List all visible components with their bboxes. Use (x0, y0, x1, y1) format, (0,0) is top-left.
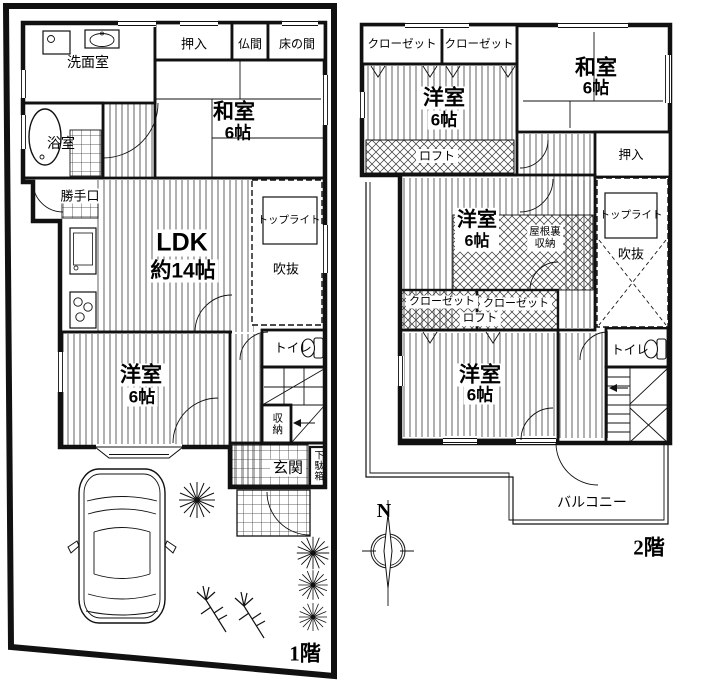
room-label-senmen: 洗面室 (67, 55, 109, 69)
label-attic-storage-line2: 収納 (529, 238, 561, 250)
room-label-closet-nw2: クローゼット (445, 39, 514, 51)
floor2-title: 2階 (633, 538, 665, 559)
compass-north-label: N (377, 501, 391, 521)
room-label-yoshitsu-1f: 洋室 (117, 364, 165, 387)
kitchen-sink-icon (70, 228, 96, 274)
label-toplight-2f: トップライト (600, 210, 663, 221)
skylight-1f (252, 180, 322, 325)
label-attic-storage: 屋根裏 収納 (527, 225, 563, 252)
room-label-yokushitsu: 浴室 (47, 136, 75, 150)
room-label-genkan: 玄関 (270, 460, 306, 477)
label-loft-n: ロフト (416, 149, 458, 163)
label-attic-storage-line1: 屋根裏 (529, 226, 561, 238)
label-fukinuke-2f: 吹抜 (618, 248, 644, 261)
floor2-plan (358, 21, 671, 606)
room-label-yoshitsu-s: 洋室 (456, 364, 504, 387)
room-size-yoshitsu-n: 6帖 (428, 111, 460, 130)
room-label-closet-s1: クローゼット (406, 296, 478, 309)
porch-tile (237, 490, 310, 536)
shrub-icon (179, 482, 215, 518)
room-size-yoshitsu-1f: 6帖 (126, 388, 158, 407)
room-label-tokonoma: 床の間 (279, 38, 315, 50)
car-icon (68, 469, 176, 623)
room-label-yoshitsu-mid: 洋室 6帖 (455, 208, 499, 252)
room-label-yoshitsu-n: 洋室 (420, 87, 468, 110)
room-label-washitsu-2f: 和室 (575, 58, 617, 79)
room-label-toilet-2f: トイレ (611, 344, 649, 357)
stove-icon (70, 292, 96, 328)
room-size-washitsu-2f: 6帖 (583, 80, 609, 97)
room-label-closet-nw1: クローゼット (368, 39, 437, 51)
washbasin-icon (43, 31, 70, 54)
label-getabako: 下駄箱 (313, 450, 323, 482)
room-label-toilet-1f: トイレ (274, 342, 312, 355)
label-toplight-1f: トップライト (258, 215, 321, 226)
room-label-katteguchi: 勝手口 (57, 189, 102, 204)
shrub-icon (299, 603, 327, 631)
label-shuno-1f: 収納 (272, 413, 283, 436)
floor1-title: 1階 (289, 644, 321, 665)
label-fukinuke-1f: 吹抜 (273, 263, 299, 276)
label-balcony: バルコニー (557, 495, 627, 509)
shrub-icon (297, 537, 329, 569)
room-label-butsuma: 仏間 (238, 38, 262, 50)
floorplan-canvas (0, 0, 701, 686)
label-loft-s: ロフト (460, 312, 501, 326)
room-size-yoshitsu-mid: 6帖 (457, 232, 497, 251)
sink-icon (85, 30, 119, 48)
room-label-ldk: LDK (153, 230, 210, 257)
room-label-yoshitsu-mid-name: 洋室 (457, 209, 497, 233)
room-size-yoshitsu-s: 6帖 (464, 386, 496, 405)
shrub-icon (298, 570, 328, 600)
room-label-closet-s2: クローゼット (480, 298, 552, 311)
floorplan-page: 洗面室 押入 仏間 床の間 和室 6帖 浴室 勝手口 LDK 約14帖 トップラ… (0, 0, 701, 686)
room-label-oshiire-2f: 押入 (618, 149, 643, 162)
room-label-washitsu-1f: 和室 (213, 102, 255, 123)
room-size-washitsu-1f: 6帖 (225, 125, 251, 142)
room-label-oshiire-1f: 押入 (181, 38, 207, 51)
room-size-ldk: 約14帖 (147, 260, 218, 283)
